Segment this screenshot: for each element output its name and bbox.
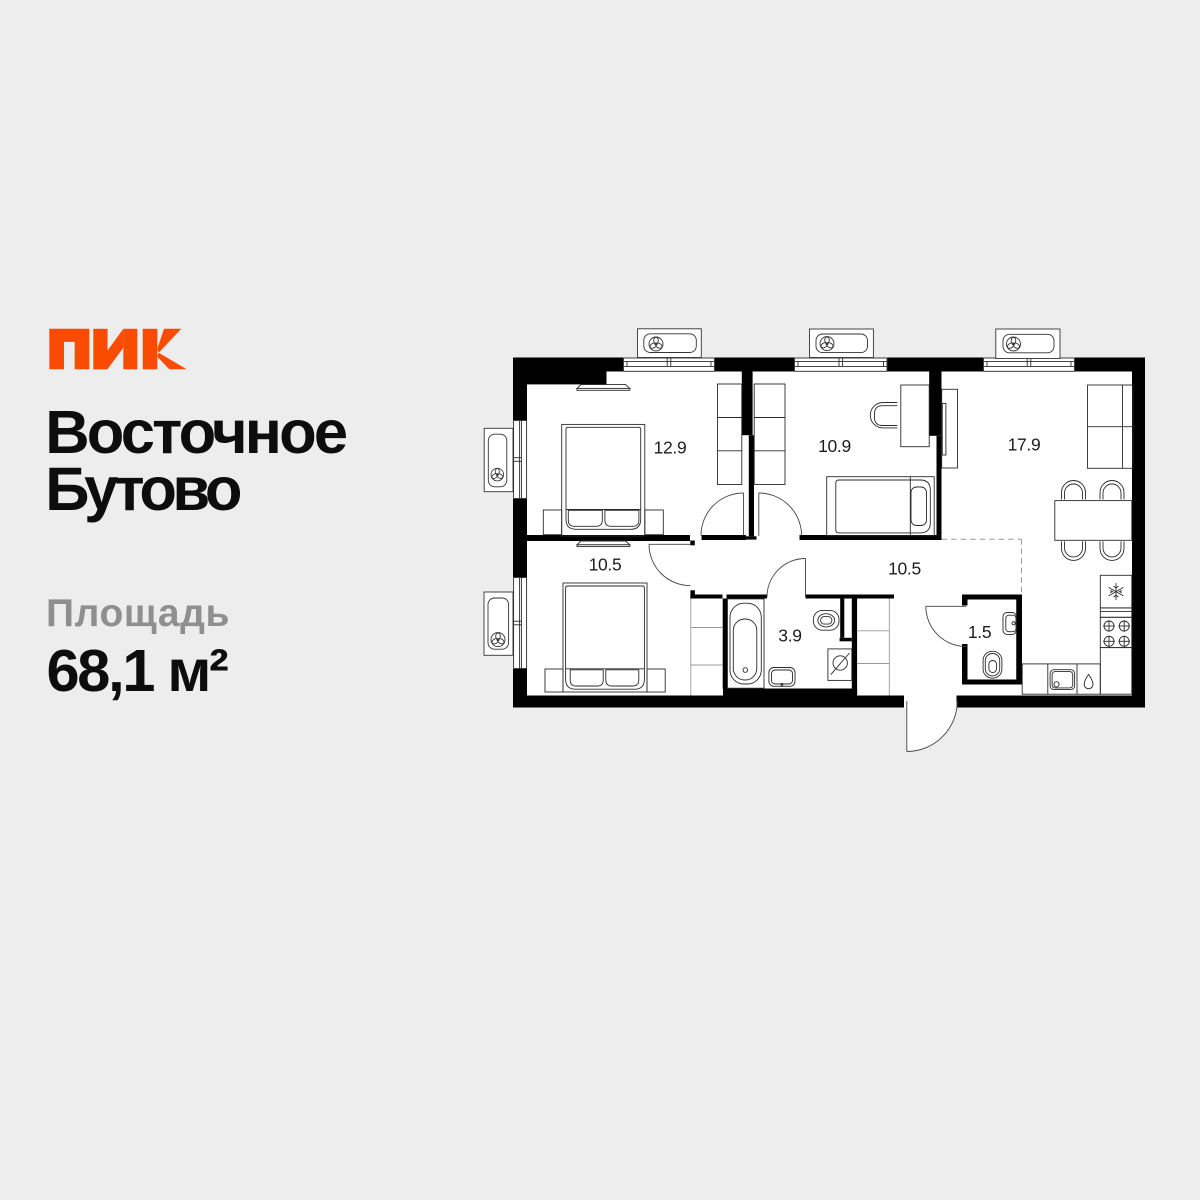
svg-text:17.9: 17.9 — [1008, 434, 1041, 454]
svg-text:10.9: 10.9 — [818, 436, 851, 456]
svg-text:10.5: 10.5 — [888, 559, 921, 579]
svg-text:10.5: 10.5 — [589, 555, 622, 575]
svg-text:12.9: 12.9 — [654, 437, 687, 457]
svg-text:3.9: 3.9 — [778, 626, 801, 646]
svg-text:1.5: 1.5 — [968, 622, 991, 642]
